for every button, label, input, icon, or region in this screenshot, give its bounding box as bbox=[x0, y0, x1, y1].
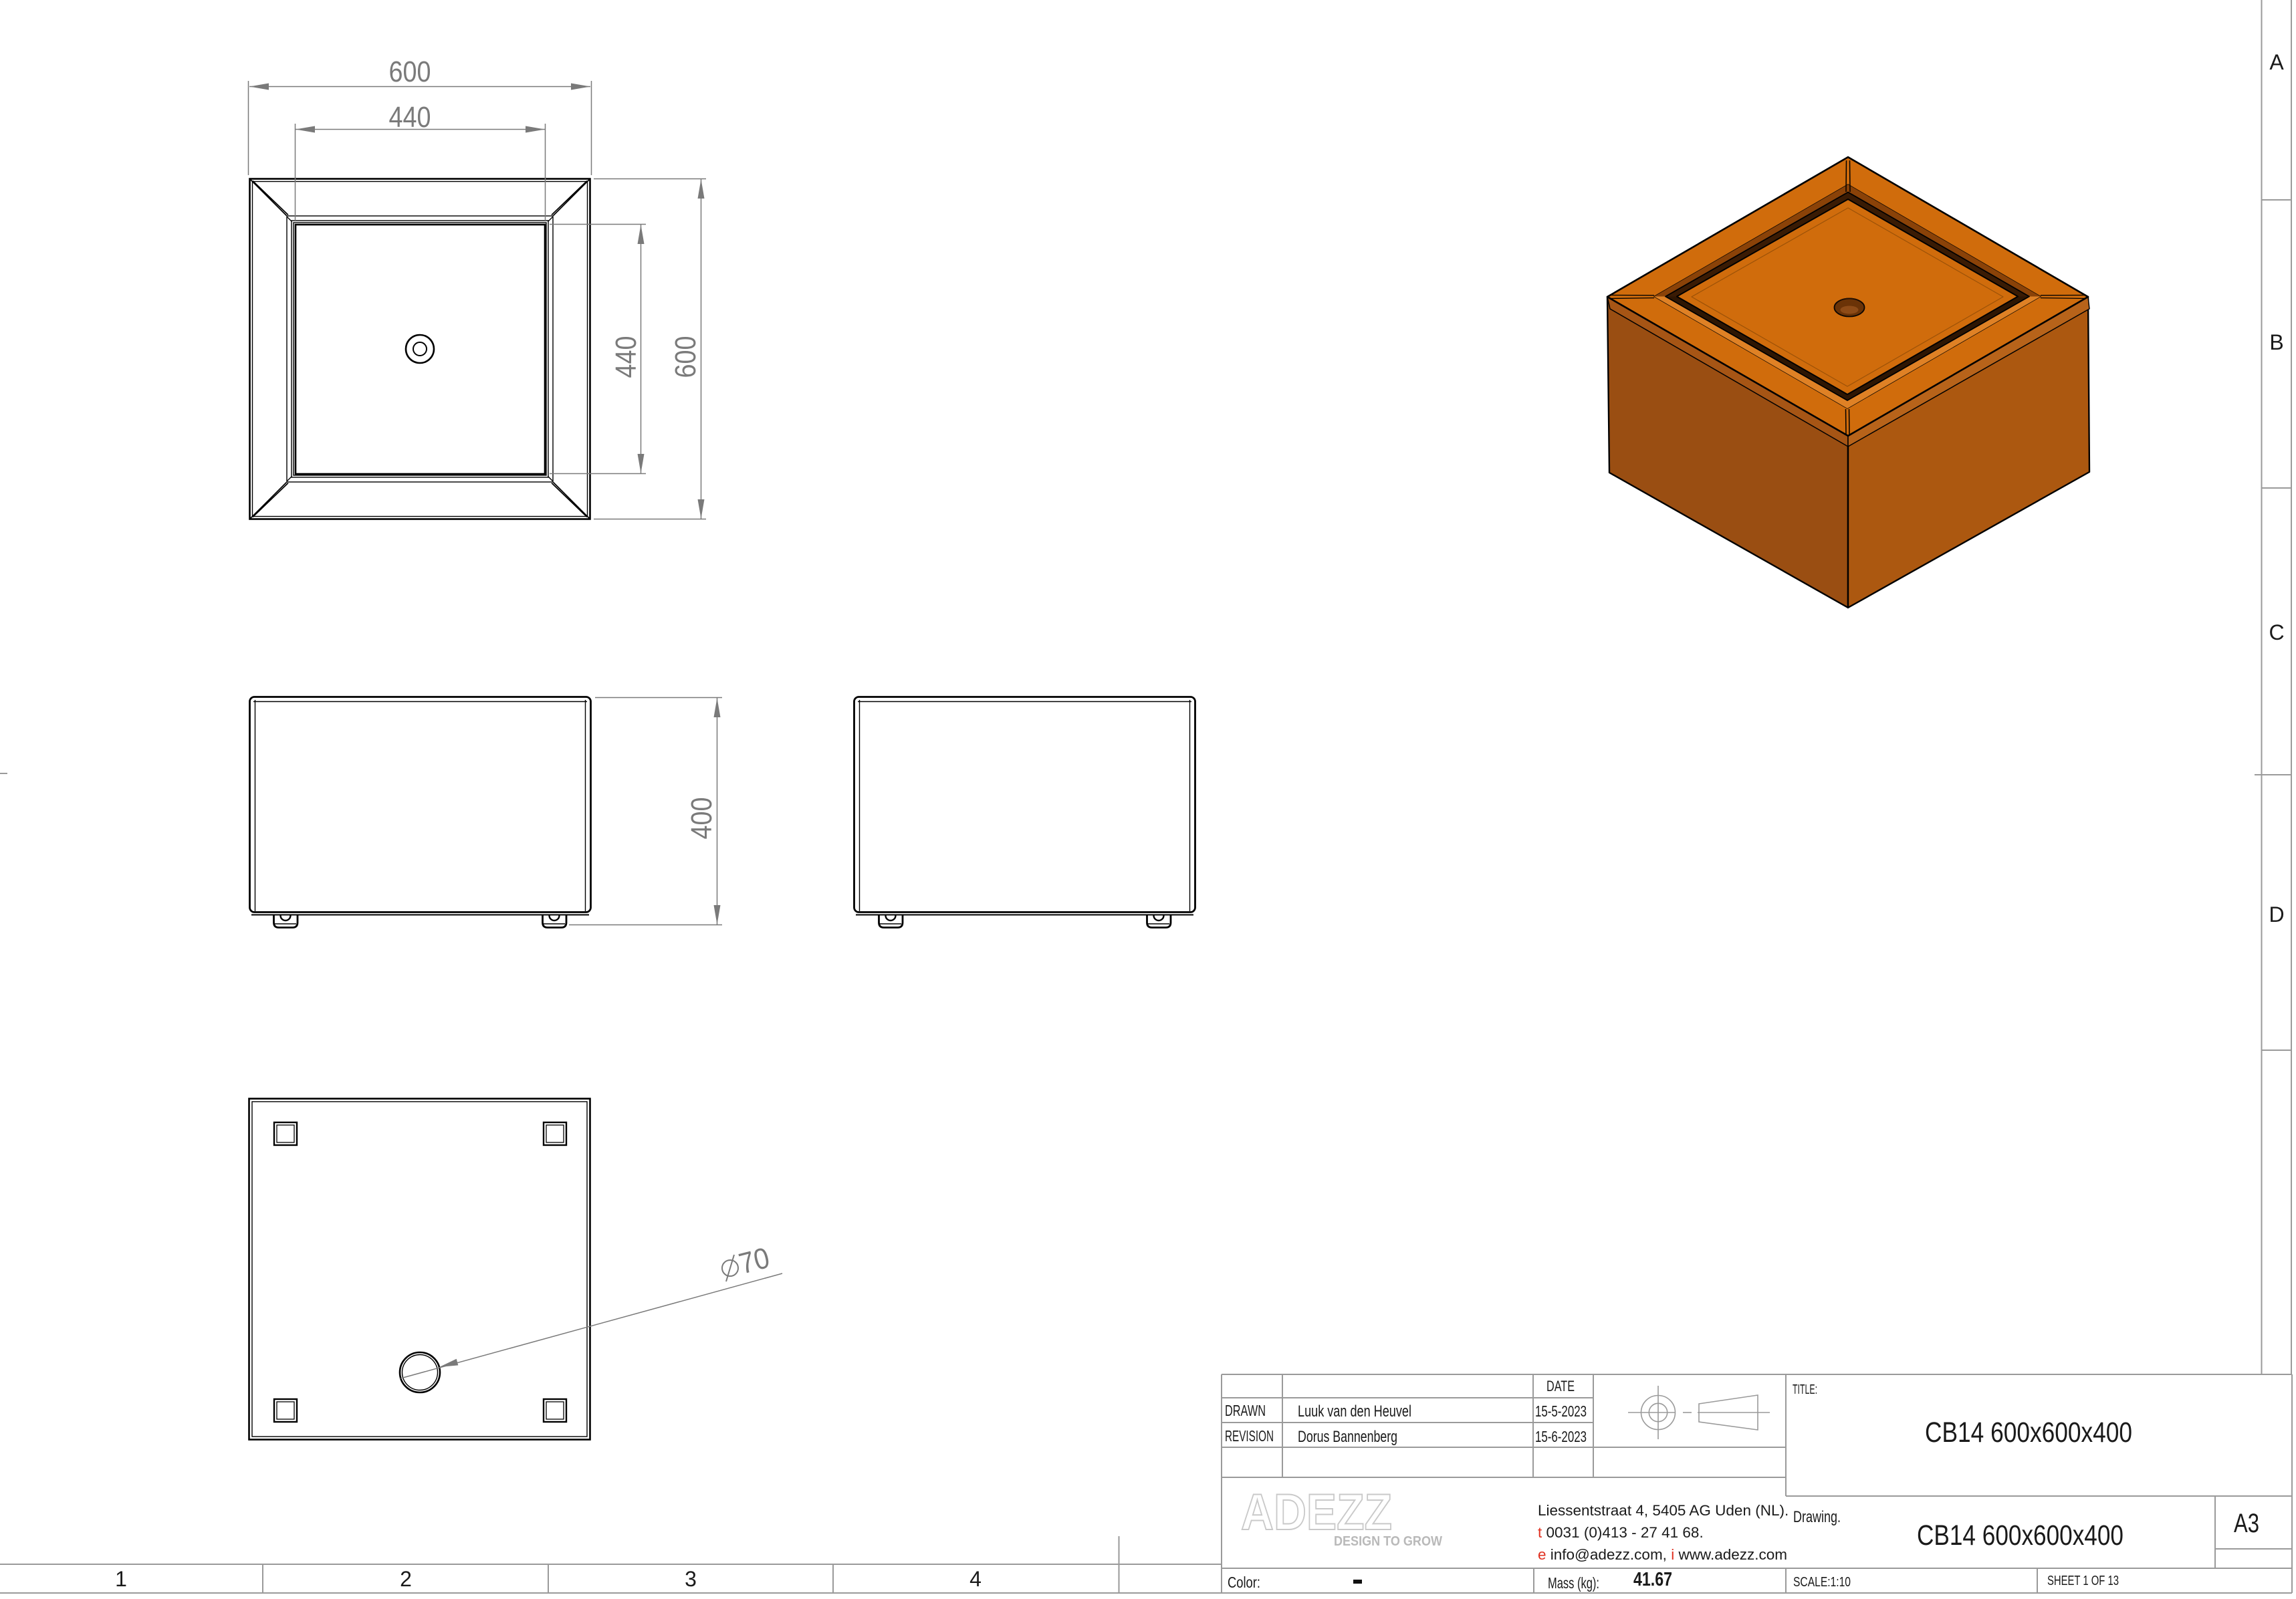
svg-text:600: 600 bbox=[389, 55, 431, 88]
svg-text:e info@adezz.com, i www.adezz.: e info@adezz.com, i www.adezz.com bbox=[1538, 1546, 1787, 1563]
svg-text:2: 2 bbox=[400, 1567, 412, 1591]
svg-text:CB14 600x600x400: CB14 600x600x400 bbox=[1917, 1519, 2123, 1552]
svg-text:D: D bbox=[2269, 902, 2284, 927]
svg-text:41.67: 41.67 bbox=[1633, 1569, 1672, 1590]
svg-text:SHEET 1 OF 13: SHEET 1 OF 13 bbox=[2047, 1574, 2119, 1588]
svg-text:B: B bbox=[2269, 330, 2283, 354]
svg-text:Color:: Color: bbox=[1228, 1574, 1260, 1591]
svg-text:SCALE:1:10: SCALE:1:10 bbox=[1793, 1575, 1851, 1590]
svg-text:15-5-2023: 15-5-2023 bbox=[1535, 1402, 1587, 1420]
svg-text:DESIGN TO GROW: DESIGN TO GROW bbox=[1334, 1534, 1442, 1549]
svg-text:Mass (kg):: Mass (kg): bbox=[1548, 1574, 1599, 1592]
svg-text:CB14 600x600x400: CB14 600x600x400 bbox=[1925, 1417, 2132, 1449]
svg-text:C: C bbox=[2269, 620, 2284, 644]
svg-text:4: 4 bbox=[969, 1567, 982, 1591]
svg-text:t 0031 (0)413 - 27 41 68.: t 0031 (0)413 - 27 41 68. bbox=[1538, 1524, 1704, 1541]
svg-text:3: 3 bbox=[685, 1567, 697, 1591]
svg-text:Drawing.: Drawing. bbox=[1793, 1508, 1841, 1526]
svg-text:REVISION: REVISION bbox=[1225, 1427, 1274, 1445]
svg-text:DRAWN: DRAWN bbox=[1225, 1402, 1266, 1419]
svg-text:Liessentstraat 4, 5405 AG Uden: Liessentstraat 4, 5405 AG Uden (NL). bbox=[1538, 1502, 1789, 1519]
svg-text:DATE: DATE bbox=[1546, 1378, 1575, 1394]
svg-text:A3: A3 bbox=[2234, 1509, 2259, 1538]
svg-text:1: 1 bbox=[115, 1567, 127, 1591]
svg-text:440: 440 bbox=[389, 101, 431, 134]
svg-text:A: A bbox=[2269, 50, 2284, 74]
svg-text:600: 600 bbox=[669, 336, 702, 378]
svg-text:ADEZZ: ADEZZ bbox=[1241, 1484, 1392, 1541]
svg-text:Dorus Bannenberg: Dorus Bannenberg bbox=[1298, 1428, 1397, 1446]
svg-text:Luuk van den Heuvel: Luuk van den Heuvel bbox=[1298, 1402, 1411, 1421]
svg-text:400: 400 bbox=[685, 797, 718, 840]
svg-text:15-6-2023: 15-6-2023 bbox=[1535, 1428, 1587, 1445]
svg-text:440: 440 bbox=[610, 336, 643, 378]
svg-text:TITLE:: TITLE: bbox=[1793, 1382, 1817, 1397]
